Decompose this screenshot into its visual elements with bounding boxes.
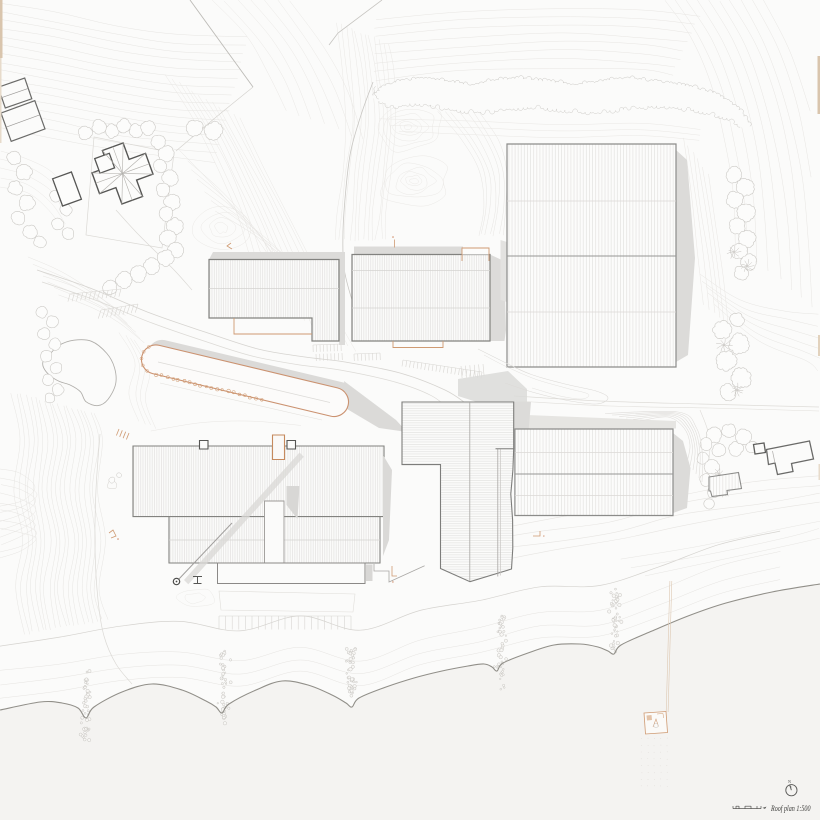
svg-text:Roof plan 1:500: Roof plan 1:500	[770, 804, 810, 813]
svg-text:a: a	[117, 537, 119, 541]
svg-text:b: b	[392, 580, 394, 584]
svg-text:a: a	[392, 235, 394, 239]
svg-text:N: N	[788, 779, 791, 784]
